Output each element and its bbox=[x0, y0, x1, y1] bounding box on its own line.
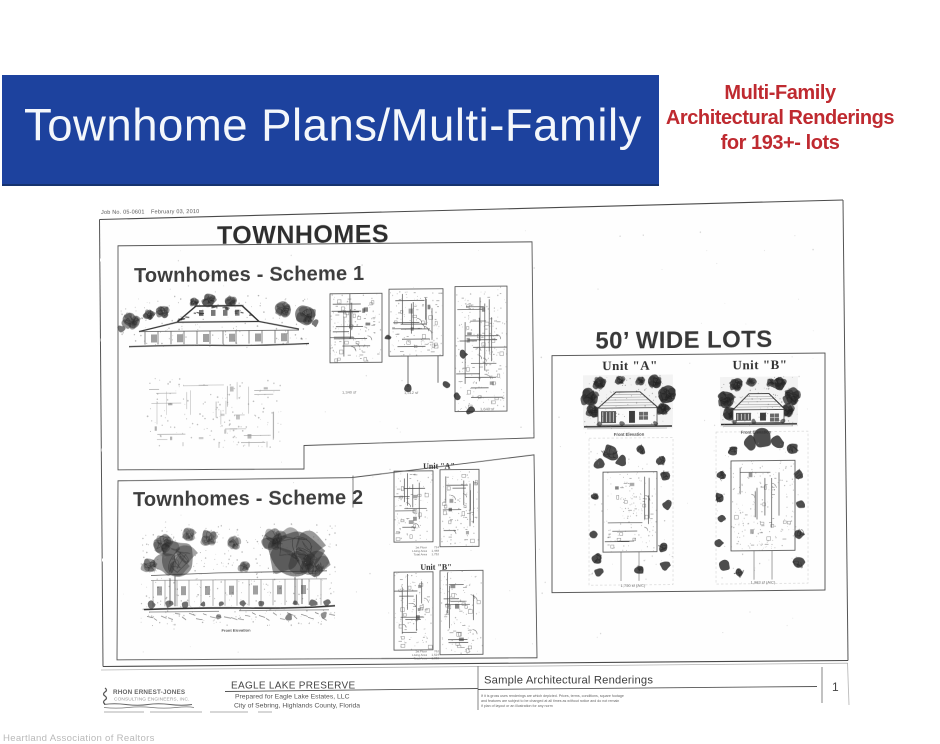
svg-text:50’ WIDE LOTS: 50’ WIDE LOTS bbox=[595, 326, 772, 355]
svg-text:Front Elevation: Front Elevation bbox=[221, 628, 251, 633]
svg-text:1,830: 1,830 bbox=[431, 656, 439, 660]
svg-text:Total Area: Total Area bbox=[414, 552, 428, 556]
svg-text:Unit "B": Unit "B" bbox=[733, 357, 788, 373]
svg-text:1,640 sf: 1,640 sf bbox=[480, 406, 495, 411]
svg-text:Sample Architectural Rendering: Sample Architectural Renderings bbox=[484, 675, 653, 687]
svg-text:February 03, 2010: February 03, 2010 bbox=[151, 209, 199, 215]
svg-text:1,752: 1,752 bbox=[431, 552, 439, 556]
svg-text:and features are subject to be: and features are subject to be changed a… bbox=[481, 699, 619, 703]
svg-text:1: 1 bbox=[832, 680, 839, 694]
svg-text:Unit "A": Unit "A" bbox=[602, 358, 658, 374]
svg-text:Total Area: Total Area bbox=[414, 656, 428, 660]
svg-text:1,750 sf (A/C): 1,750 sf (A/C) bbox=[621, 583, 646, 588]
svg-text:City of Sebring, Highlands Cou: City of Sebring, Highlands County, Flori… bbox=[234, 703, 360, 710]
svg-text:Townhomes - Scheme 1: Townhomes - Scheme 1 bbox=[134, 263, 364, 287]
svg-text:CONSULTING ENGINEERS, INC.: CONSULTING ENGINEERS, INC. bbox=[114, 697, 190, 703]
svg-text:1,340 sf: 1,340 sf bbox=[342, 390, 357, 395]
svg-text:1,512 sf: 1,512 sf bbox=[404, 390, 419, 395]
svg-text:TOWNHOMES: TOWNHOMES bbox=[217, 220, 389, 250]
svg-text:Townhomes - Scheme 2: Townhomes - Scheme 2 bbox=[133, 487, 363, 511]
svg-text:if plan of layout or an illust: if plan of layout or an illustration for… bbox=[481, 704, 553, 708]
svg-text:Prepared for Eagle Lake Estate: Prepared for Eagle Lake Estates, LLC bbox=[235, 694, 350, 701]
svg-text:RHON ERNEST-JONES: RHON ERNEST-JONES bbox=[113, 689, 185, 696]
svg-text:If it is gross uses renderings: If it is gross uses renderings are which… bbox=[481, 694, 624, 698]
svg-text:Job No. 05-0601: Job No. 05-0601 bbox=[101, 210, 145, 216]
svg-text:Front Elevation: Front Elevation bbox=[614, 432, 645, 437]
svg-text:1,983 sf (A/C): 1,983 sf (A/C) bbox=[751, 580, 776, 585]
